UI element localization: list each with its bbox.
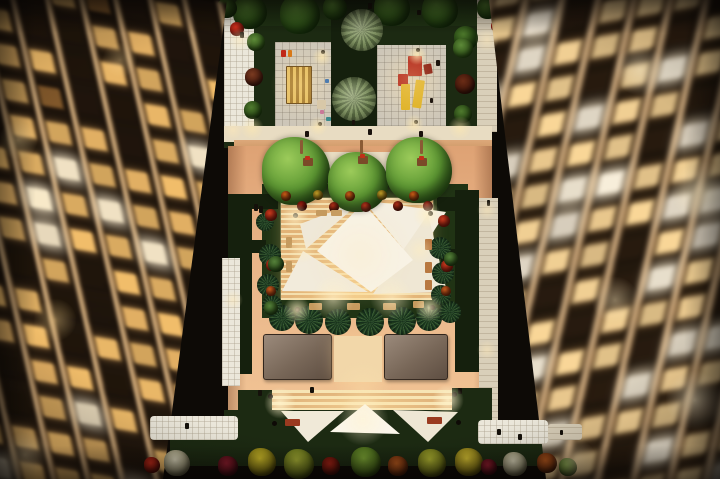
lamp-glow bbox=[283, 296, 311, 324]
lamp-glow bbox=[312, 47, 332, 67]
flower-bed-cluster bbox=[164, 450, 190, 476]
flower-bed-cluster bbox=[218, 456, 238, 476]
lamp-glow bbox=[1, 431, 49, 479]
figure bbox=[497, 429, 501, 435]
flower-bed-cluster bbox=[322, 457, 340, 475]
flower-bed-cluster bbox=[248, 448, 276, 476]
lamp-glow bbox=[591, 276, 639, 324]
lamp-glow bbox=[308, 116, 328, 136]
lamp-glow bbox=[614, 44, 666, 96]
lamp-glow bbox=[477, 200, 497, 220]
courtyard-model-photo bbox=[0, 0, 720, 479]
lamp-glow bbox=[0, 120, 38, 160]
flower-bed-cluster bbox=[481, 459, 497, 475]
flower-bed-cluster bbox=[351, 447, 381, 477]
lamp-glow bbox=[281, 203, 309, 231]
lamp-glow bbox=[223, 290, 243, 310]
lamp-glow bbox=[404, 114, 424, 134]
flower-bed-cluster bbox=[388, 456, 408, 476]
flower-bed-cluster bbox=[144, 457, 160, 473]
foreground-layer bbox=[0, 0, 720, 479]
lamp-glow bbox=[415, 294, 443, 322]
flower-bed-cluster bbox=[418, 449, 446, 477]
walkway-corner-left bbox=[150, 416, 238, 440]
lamp-glow bbox=[406, 236, 434, 264]
lamp-glow bbox=[380, 48, 444, 112]
lamp-glow bbox=[475, 28, 499, 52]
lamp-glow bbox=[333, 360, 393, 420]
flower-bed-cluster bbox=[284, 449, 314, 479]
flower-bed-cluster bbox=[559, 458, 577, 476]
lamp-glow bbox=[665, 370, 720, 430]
figure bbox=[560, 430, 563, 435]
lamp-glow bbox=[223, 120, 243, 140]
lamp-glow bbox=[102, 42, 138, 78]
lamp-glow bbox=[240, 116, 264, 140]
lamp-glow bbox=[477, 340, 497, 360]
lamp-glow bbox=[407, 45, 427, 65]
lamp-glow bbox=[228, 28, 252, 52]
lamp-glow bbox=[33, 298, 77, 342]
figure bbox=[185, 423, 189, 429]
walkway-corner-right bbox=[478, 420, 548, 444]
flower-bed-cluster bbox=[537, 453, 557, 473]
lamp-glow bbox=[670, 160, 720, 220]
lamp-glow bbox=[305, 200, 415, 310]
lamp-glow bbox=[311, 276, 355, 320]
walkway-stub-right bbox=[548, 424, 582, 440]
lamp-glow bbox=[448, 116, 472, 140]
flower-bed-cluster bbox=[455, 448, 483, 476]
lamp-glow bbox=[337, 394, 389, 446]
lamp-glow bbox=[413, 201, 441, 229]
lamp-glow bbox=[432, 384, 464, 416]
lamp-glow bbox=[370, 276, 414, 320]
lamp-glow bbox=[288, 236, 316, 264]
lamp-glow bbox=[264, 387, 296, 419]
flower-bed-cluster bbox=[503, 452, 527, 476]
lamp-glow bbox=[270, 55, 330, 115]
figure bbox=[518, 434, 522, 440]
